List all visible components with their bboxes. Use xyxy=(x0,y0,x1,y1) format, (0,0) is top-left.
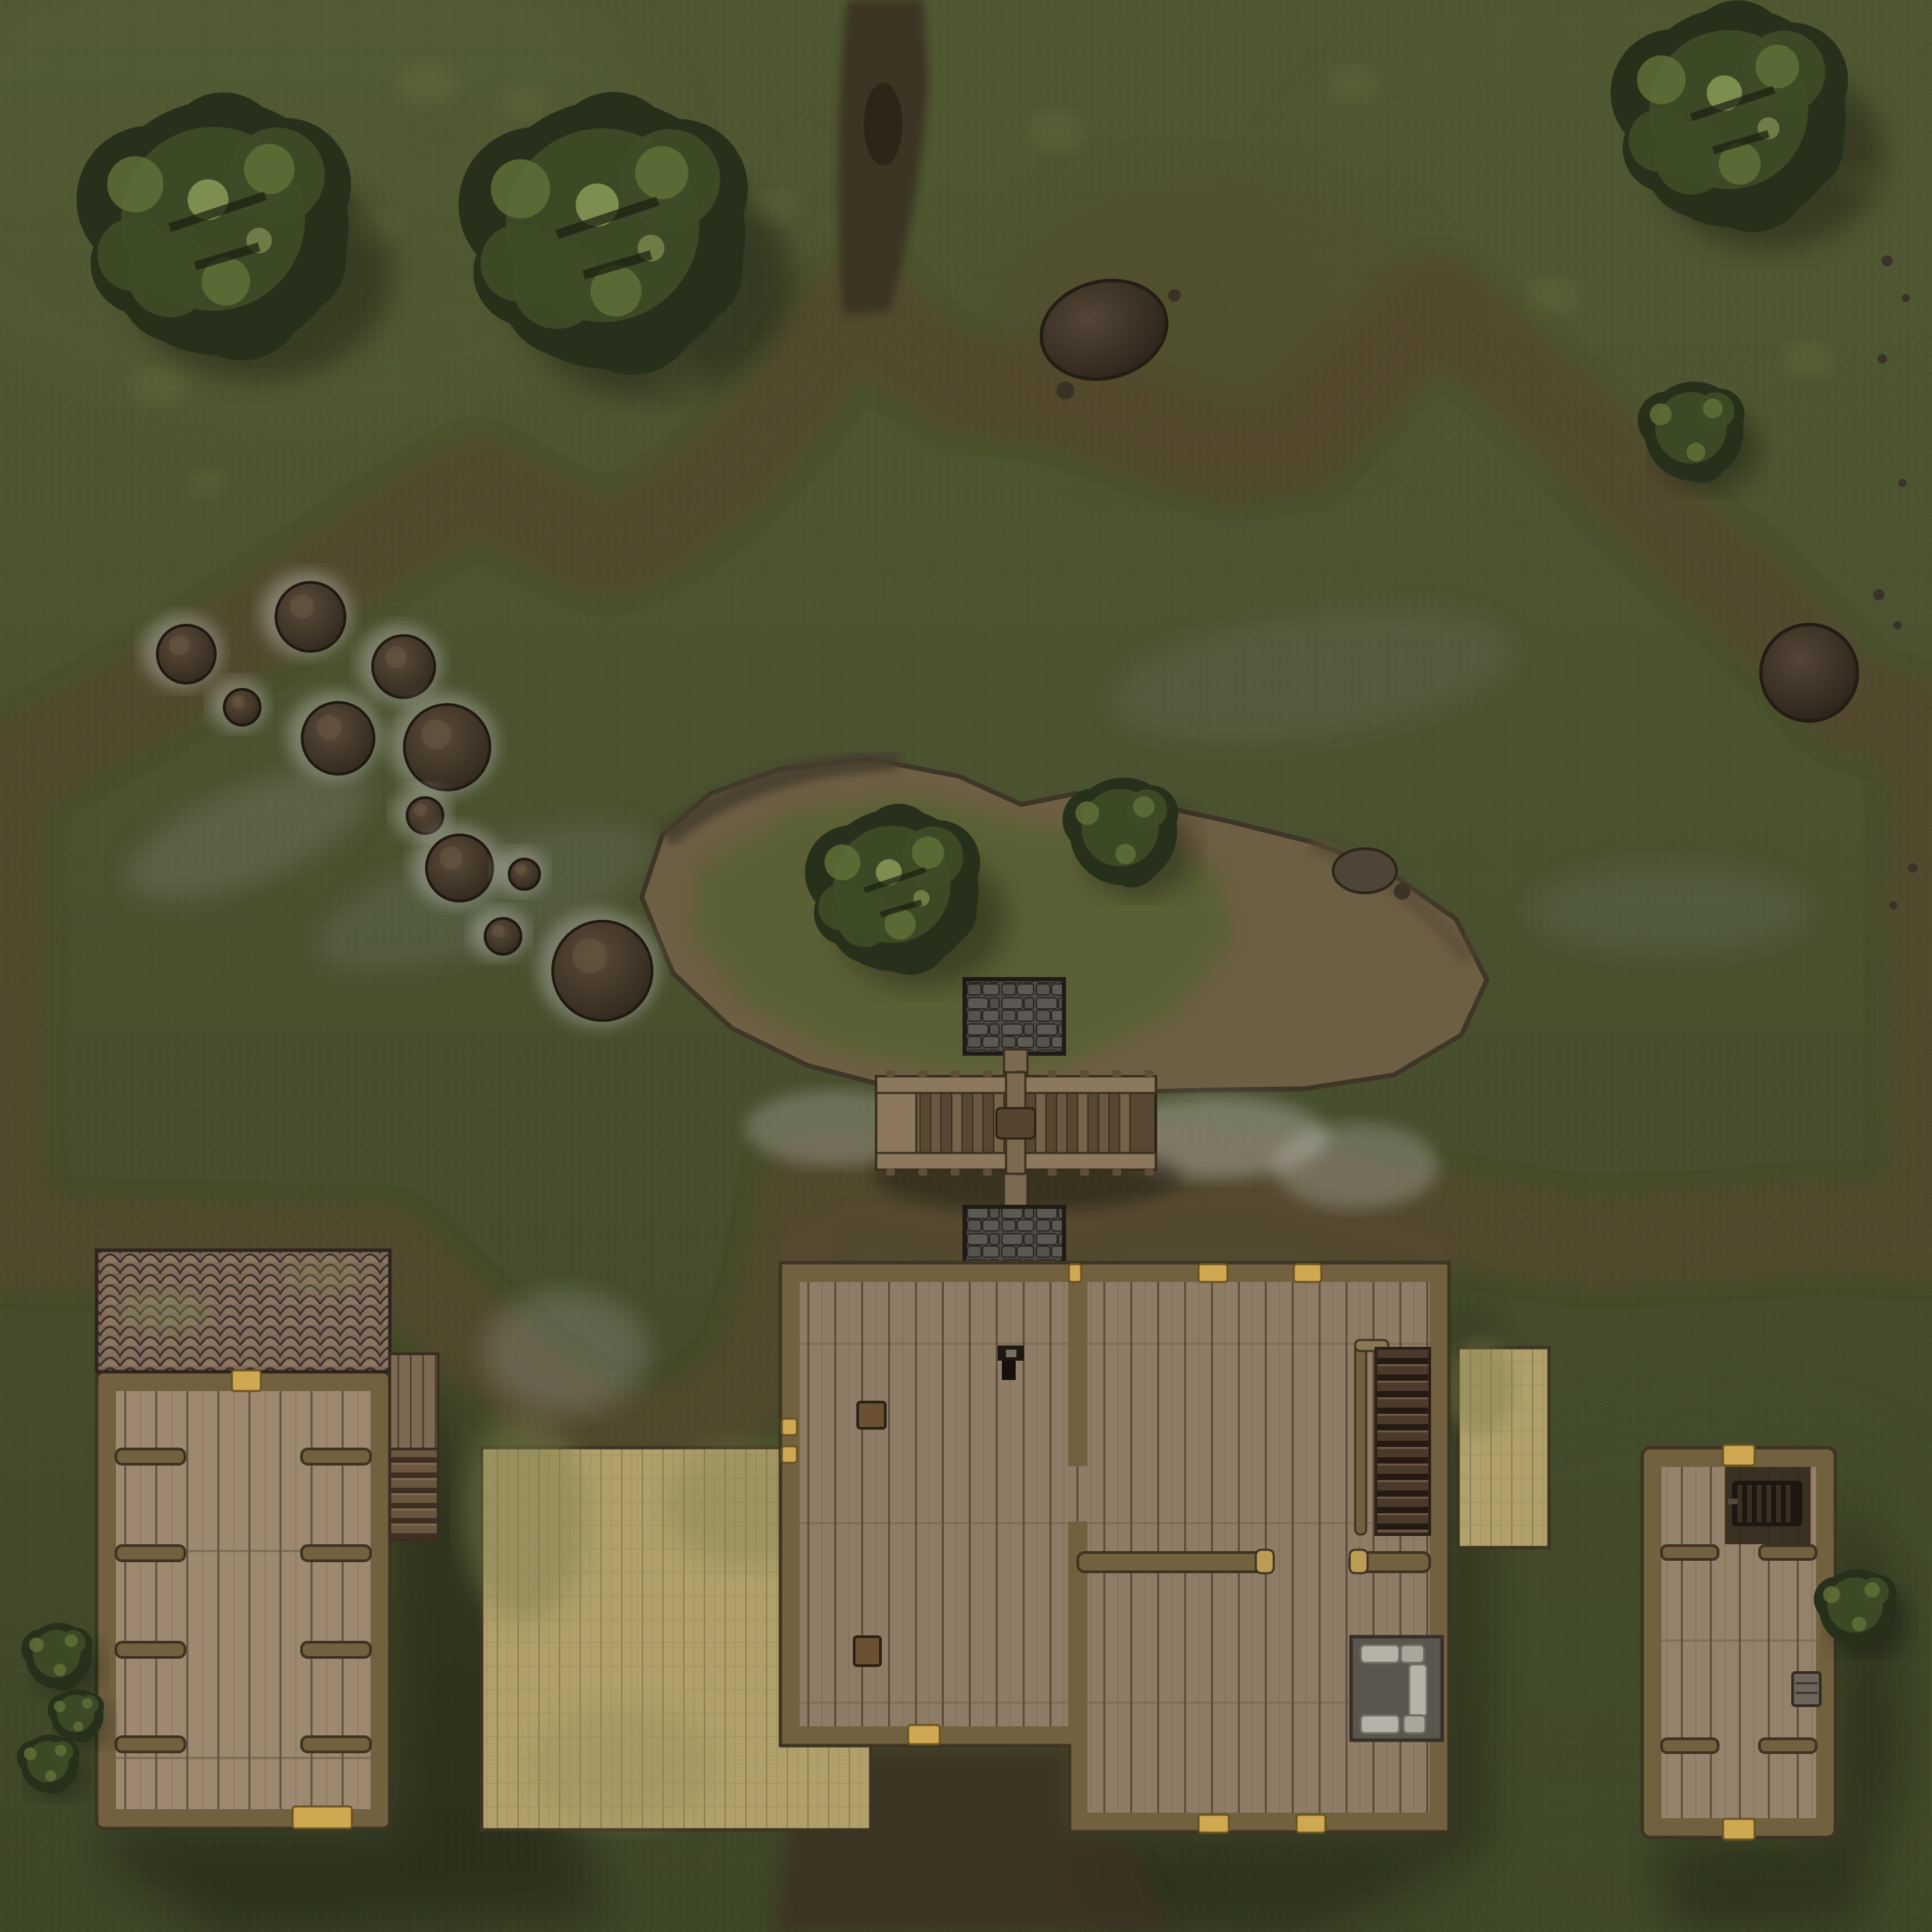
wheel-tooth xyxy=(983,1169,992,1176)
wheel-hub xyxy=(996,1108,1035,1138)
wheel-tooth xyxy=(1080,1169,1089,1176)
tree-canopy-light xyxy=(29,1637,43,1652)
log-line xyxy=(1795,1682,1817,1684)
tree-canopy-light xyxy=(65,1634,78,1647)
tree-canopy-mid xyxy=(480,224,558,302)
shed-door-gap xyxy=(1723,1819,1755,1840)
tool-rack-tine xyxy=(1766,1485,1771,1522)
ford-stone-highlight xyxy=(290,595,314,619)
wheel-tooth xyxy=(951,1070,960,1077)
shed-stall-stub-left xyxy=(1662,1739,1718,1753)
ford-stone-highlight xyxy=(515,865,526,875)
bank-boulder xyxy=(1761,624,1857,721)
ford-stone-highlight xyxy=(169,635,189,655)
pebble xyxy=(1898,479,1906,487)
stable-side-deck xyxy=(390,1354,438,1449)
wheel-paddle xyxy=(952,1083,962,1163)
tree-canopy-light xyxy=(1864,1582,1880,1597)
field-green-mottle xyxy=(1446,1339,1515,1435)
wall-gold-cap xyxy=(1350,1550,1368,1573)
ford-stone xyxy=(426,835,493,901)
stable-building xyxy=(97,1250,438,1828)
tool-rack-tine xyxy=(1786,1485,1791,1522)
fireplace-stone xyxy=(1361,1645,1399,1663)
stable-door-gap xyxy=(293,1806,352,1828)
mill-door-gap xyxy=(1199,1815,1229,1833)
ford-stone-highlight xyxy=(231,696,244,708)
mill-door-gap xyxy=(782,1446,797,1463)
stable-side-steps xyxy=(390,1449,438,1540)
ford-stone xyxy=(276,582,345,651)
wheel-tooth xyxy=(951,1169,960,1176)
wheel-anchor-stone-north xyxy=(965,979,1064,1054)
wheel-tooth xyxy=(1145,1070,1154,1077)
tree-canopy-light xyxy=(1852,1617,1866,1631)
mill-inner-doorway xyxy=(1068,1466,1087,1521)
ford-stone xyxy=(373,635,435,698)
tree-canopy-light xyxy=(1133,796,1154,818)
small-rock xyxy=(1056,382,1074,400)
ford-stone xyxy=(553,921,652,1021)
wheel-tooth xyxy=(1080,1070,1089,1077)
tree-canopy-light xyxy=(24,1747,37,1760)
battle-map xyxy=(0,0,1932,1932)
shed-stall-stub-left xyxy=(1662,1546,1718,1559)
wheel-tooth xyxy=(1112,1070,1121,1077)
tree-canopy-light xyxy=(1076,801,1099,825)
tree-canopy-light xyxy=(1650,404,1672,426)
mill-inner-wall-h1 xyxy=(1078,1552,1272,1572)
stable-stall-stub-right xyxy=(302,1737,371,1752)
tool-rack-tine xyxy=(1747,1485,1752,1522)
tree-canopy-light xyxy=(825,845,860,880)
roof-moss xyxy=(283,1259,366,1294)
wheel-tooth xyxy=(886,1169,895,1176)
fireplace-stone xyxy=(1361,1715,1399,1733)
field-green-mottle xyxy=(462,1414,586,1621)
tree-canopy-light xyxy=(1115,844,1136,865)
trail-shade xyxy=(864,83,903,166)
shed-building xyxy=(1642,1445,1835,1840)
wheel-paddle xyxy=(1078,1083,1088,1163)
wheel-paddle xyxy=(1098,1083,1109,1163)
ford-stone xyxy=(509,859,540,889)
tree-canopy-light xyxy=(912,836,945,869)
mill-door-gap xyxy=(1199,1264,1228,1282)
mill-door-gap xyxy=(1294,1264,1321,1282)
tree-canopy-light xyxy=(46,1771,57,1782)
wheel-tooth xyxy=(918,1070,927,1077)
right-bank-rock xyxy=(1761,624,1857,721)
tree-canopy-mid xyxy=(818,884,865,931)
ford-stone xyxy=(302,702,374,774)
pebble xyxy=(1902,294,1910,302)
wheel-anchor-stone-south xyxy=(965,1207,1064,1265)
tree-canopy-light xyxy=(82,1698,92,1708)
tree-canopy-light xyxy=(1703,399,1722,418)
log-line xyxy=(1795,1692,1817,1694)
wheel-paddle xyxy=(931,1083,941,1163)
tree-canopy-light xyxy=(1686,443,1705,462)
wooden-crate xyxy=(858,1402,885,1428)
iron-fitting-part xyxy=(1006,1350,1016,1357)
wheel-tooth xyxy=(1145,1169,1154,1176)
tree-canopy-light xyxy=(635,146,689,199)
wheel-tooth xyxy=(1047,1169,1056,1176)
ford-stone-highlight xyxy=(422,720,451,749)
stable-stall-stub-right xyxy=(302,1449,371,1464)
ford-stone xyxy=(157,625,215,683)
stable-stall-stub-left xyxy=(116,1449,185,1464)
wheel-paddle xyxy=(1036,1083,1046,1163)
island-rock-small xyxy=(1394,883,1410,900)
ford-stone-highlight xyxy=(385,647,407,669)
tree-canopy-light xyxy=(54,1664,66,1676)
wall-gold-cap xyxy=(1256,1550,1274,1573)
wheel-tooth xyxy=(918,1169,927,1176)
tree-canopy-mid xyxy=(97,218,171,292)
mill-door-gap xyxy=(782,1419,797,1435)
pebble xyxy=(1882,255,1893,266)
wheel-tooth xyxy=(983,1070,992,1077)
tool-rack-hook xyxy=(1728,1499,1737,1504)
wheel-paddle xyxy=(1056,1083,1067,1163)
tree-canopy-light xyxy=(244,144,295,194)
tree-canopy-mid xyxy=(1628,109,1692,172)
tree-canopy-light xyxy=(73,1722,83,1731)
wheel-tooth xyxy=(886,1070,895,1077)
tree-canopy-light xyxy=(1755,45,1799,88)
pebble xyxy=(1889,901,1897,909)
wheel-tooth xyxy=(1112,1169,1121,1176)
stacked-logs xyxy=(1793,1673,1820,1706)
stable-stall-stub-left xyxy=(116,1546,185,1561)
iron-fitting-part xyxy=(1002,1361,1016,1380)
stable-stall-stub-right xyxy=(302,1546,371,1561)
tree-canopy-light xyxy=(55,1744,67,1756)
ford-stone xyxy=(404,704,490,790)
tool-rack-tine xyxy=(1757,1485,1762,1522)
pebble xyxy=(1877,354,1887,364)
small-rock xyxy=(1168,289,1181,302)
pebble xyxy=(1908,863,1918,873)
mill-house xyxy=(780,1263,1449,1833)
fireplace-stone xyxy=(1403,1715,1426,1733)
shed-door-gap xyxy=(1723,1445,1755,1466)
island-rocks xyxy=(1333,849,1397,893)
mill-door-gap xyxy=(1297,1815,1325,1833)
shed-stall-stub-right xyxy=(1759,1546,1816,1559)
ford-stone-highlight xyxy=(492,925,504,937)
fireplace-stone xyxy=(1401,1645,1424,1663)
tree-canopy-light xyxy=(491,159,550,219)
ford-stone-highlight xyxy=(317,715,342,740)
fireplace-stone xyxy=(1409,1664,1427,1717)
wooden-crate xyxy=(854,1637,880,1666)
tree-canopy-light xyxy=(1823,1586,1840,1604)
tree-canopy-light xyxy=(54,1701,66,1713)
tool-rack xyxy=(1728,1481,1802,1526)
ford-stone-highlight xyxy=(414,804,426,816)
wheel-paddle xyxy=(1120,1083,1130,1163)
stable-stall-stub-left xyxy=(116,1642,185,1657)
pebble xyxy=(1873,589,1884,600)
tool-rack-tine xyxy=(1776,1485,1781,1522)
mill-door-gap xyxy=(908,1725,940,1744)
ford-stone-highlight xyxy=(573,938,607,973)
stable-door-gap xyxy=(232,1370,261,1391)
ford-stone xyxy=(224,689,260,725)
mill-door-gap xyxy=(1069,1264,1081,1282)
stable-stall-stub-left xyxy=(116,1737,185,1752)
ford-stone-highlight xyxy=(440,847,463,870)
wheel-paddle xyxy=(973,1083,983,1163)
field-green-mottle xyxy=(524,1704,718,1828)
water-wheel xyxy=(876,1070,1156,1176)
wheel-tooth xyxy=(1047,1070,1056,1077)
tree-canopy-light xyxy=(1637,55,1686,104)
ford-stone xyxy=(485,918,521,954)
tree-canopy-light xyxy=(107,156,164,213)
roof-moss xyxy=(117,1290,214,1332)
shed-stall-stub-right xyxy=(1759,1739,1816,1753)
stair-railing-wall xyxy=(1355,1340,1366,1535)
rapids-foam xyxy=(1273,1123,1439,1209)
stable-stall-stub-right xyxy=(302,1642,371,1657)
mill-floor-west-room xyxy=(800,1282,1068,1726)
staircase xyxy=(1376,1348,1430,1535)
fireplace xyxy=(1351,1637,1442,1740)
tool-rack-tine xyxy=(1737,1485,1742,1522)
pebble xyxy=(1893,621,1902,629)
